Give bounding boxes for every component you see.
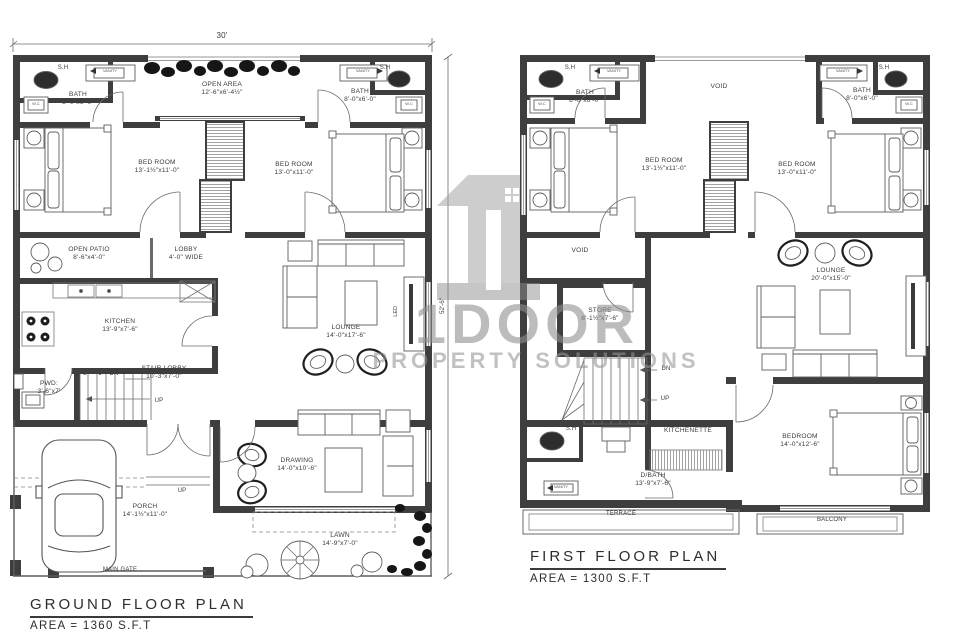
- label-gf-wc-left: W.C: [32, 101, 40, 106]
- shower-head-icon: [539, 71, 563, 88]
- label-gf-stair-2: 2: [83, 371, 87, 379]
- label-gf-up-stair: UP: [155, 398, 164, 406]
- shower-head-icon: [34, 72, 58, 89]
- label-ff-bedroom-bottom: BEDROOM14'-0"x12'-6": [780, 433, 820, 449]
- patio-plants: [31, 243, 62, 273]
- wardrobe-column: [200, 122, 244, 232]
- label-gf-lounge: LOUNGE14'-0"x17'-6": [326, 324, 366, 340]
- watermark-tagline: PROPERTY SOLUTIONS: [372, 348, 699, 374]
- label-gf-kitchen: KITCHEN13'-9"x7'-6": [102, 318, 138, 334]
- label-gf-open-patio: OPEN PATIO8'-6"x4'-0": [68, 246, 109, 262]
- label-gf-main-gate: MAIN GATE: [103, 567, 137, 575]
- label-ff-vanity-right: VANITY: [836, 68, 850, 73]
- label-gf-wc-right: W.C: [405, 101, 413, 106]
- shower-head-icon: [388, 71, 410, 87]
- label-gf-vanity-right: VANITY: [356, 68, 370, 73]
- label-ff-dbath: D/BATH13'-9"x7'-6": [635, 472, 671, 488]
- ground-floor-area: AREA = 1360 S.F.T: [30, 620, 152, 632]
- label-gf-bath-right: BATH8'-0"x6'-0": [344, 88, 376, 104]
- label-ff-balcony: BALCONY: [817, 517, 847, 525]
- label-ff-lounge: LOUNGE20'-0"x15'-0": [811, 267, 851, 283]
- label-ff-shower-left: S.H: [565, 65, 576, 73]
- label-gf-lawn: LAWN14'-9"x7'-0": [322, 532, 358, 548]
- first-floor-title: FIRST FLOOR PLAN: [530, 548, 726, 570]
- shrubs: [387, 504, 432, 576]
- label-ff-vanity-bottom: VANITY: [554, 484, 568, 489]
- label-ff-void-mid: VOID: [572, 247, 589, 255]
- shower-head-icon: [885, 71, 907, 87]
- label-gf-shower-left: S.H: [58, 65, 69, 73]
- label-ff-terrace: TERRACE: [606, 511, 636, 519]
- label-gf-stair-1: 1: [98, 371, 102, 379]
- ff-bed-bottom: [830, 396, 922, 494]
- dimension-width-label: 30': [216, 31, 227, 41]
- label-ff-wc-right: W.C: [905, 101, 913, 106]
- ground-floor-title: GROUND FLOOR PLAN: [30, 596, 253, 618]
- label-gf-lobby: LOBBY4'-0" WIDE: [169, 246, 203, 262]
- label-gf-dn: DN: [109, 371, 118, 379]
- label-gf-pwd: PWD:3'-6"x7': [38, 380, 61, 396]
- label-gf-drawing: DRAWING14'-0"x10'-6": [277, 457, 317, 473]
- label-ff-up: UP: [661, 396, 670, 404]
- label-ff-wc-left: W.C: [538, 101, 546, 106]
- label-ff-bedroom-right: BED ROOM13'-0"x11'-0": [777, 161, 816, 177]
- label-gf-open-area: OPEN AREA12'-6"x6'-4½": [201, 81, 242, 97]
- label-gf-shower-right: S.H: [380, 65, 391, 73]
- ff-lounge-furniture: [757, 236, 926, 377]
- label-ff-kitchenette: KITCHENETTE: [664, 427, 712, 435]
- ground-floor-drawing: [10, 38, 452, 579]
- label-gf-vanity-left: VANITY: [103, 68, 117, 73]
- label-gf-stair-lobby: STAIR LOBBY10'-3"x7'-0": [142, 365, 187, 381]
- label-ff-shower-right: S.H: [879, 65, 890, 73]
- label-ff-shower-bottom: S.H: [566, 426, 577, 434]
- kitchen-fixtures: [22, 281, 215, 346]
- label-gf-porch: PORCH14'-1½"x11'-0": [123, 503, 168, 519]
- bed-left: [24, 125, 111, 215]
- label-ff-void-top: VOID: [711, 83, 728, 91]
- first-floor-area: AREA = 1300 S.F.T: [530, 573, 652, 585]
- hedge-plants: [144, 60, 300, 77]
- ground-floor-stairs: [80, 374, 151, 420]
- label-gf-led-tv: LED: [393, 306, 399, 317]
- label-ff-bath-right: BATH8'-0"x6'-0": [846, 87, 878, 103]
- wardrobe-column: [704, 122, 748, 232]
- label-ff-vanity-left: VANITY: [607, 68, 621, 73]
- porch-details: [14, 440, 210, 572]
- floor-plan-sheet: 30' 52'-6" S.H VANITY W.C BATH8'-0"x6'-0…: [0, 0, 965, 633]
- ff-dbath-fixtures: [527, 421, 630, 495]
- bed-right: [329, 128, 422, 213]
- label-gf-up-porch: UP: [178, 488, 187, 496]
- car: [36, 440, 122, 572]
- label-ff-bath-left: BATH8'-0"x6'-0": [569, 89, 601, 105]
- shower-head-icon: [540, 432, 564, 450]
- label-gf-bedroom-right: BED ROOM13'-0"x11'-0": [274, 161, 313, 177]
- label-gf-bath-left: BATH8'-0"x6'-0": [62, 91, 94, 107]
- ff-bed-right: [828, 128, 921, 213]
- tree: [281, 541, 319, 579]
- ff-bed-left: [530, 125, 617, 215]
- tv-unit: [906, 276, 926, 356]
- label-gf-bedroom-left: BED ROOM13'-1½"x11'-0": [135, 159, 180, 175]
- label-ff-bedroom-left: BED ROOM13'-1½"x11'-0": [642, 157, 687, 173]
- watermark-brand: 1DOOR: [415, 291, 639, 356]
- kitchenette-counter: [650, 450, 722, 470]
